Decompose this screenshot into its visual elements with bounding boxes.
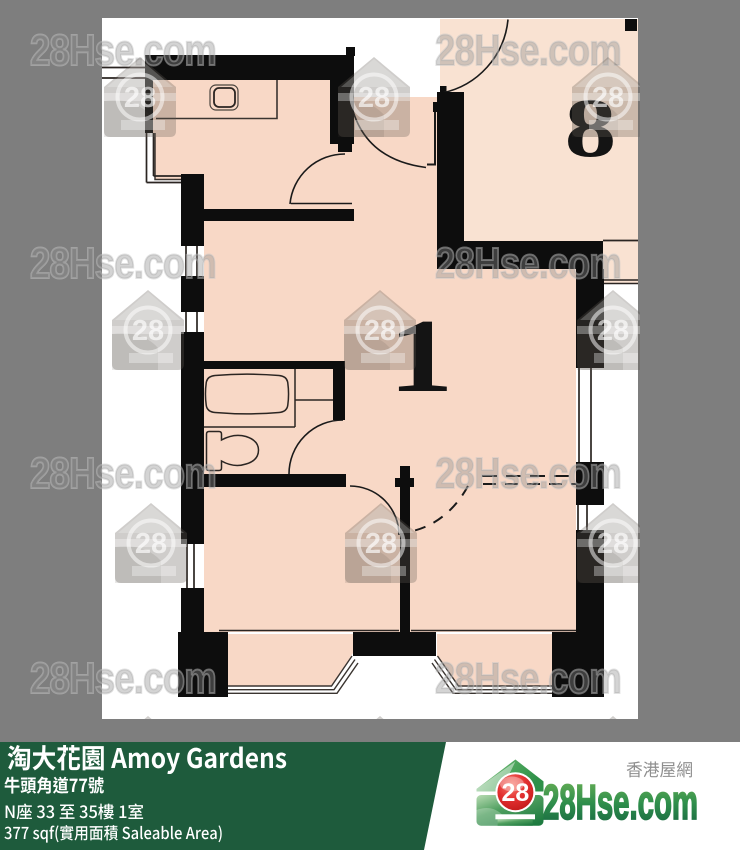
svg-text:28Hse.com: 28Hse.com	[435, 449, 621, 498]
svg-text:28Hse.com: 28Hse.com	[30, 26, 216, 75]
svg-text:28: 28	[592, 82, 624, 114]
svg-text:28: 28	[124, 82, 156, 114]
svg-text:28Hse.com: 28Hse.com	[435, 239, 621, 288]
svg-text:28: 28	[364, 315, 396, 347]
svg-text:28Hse.com: 28Hse.com	[30, 654, 216, 703]
svg-text:28: 28	[597, 528, 629, 560]
svg-text:28: 28	[597, 315, 629, 347]
svg-text:28: 28	[132, 315, 164, 347]
svg-text:28: 28	[135, 528, 167, 560]
svg-text:28Hse.com: 28Hse.com	[543, 776, 698, 830]
svg-text:28Hse.com: 28Hse.com	[30, 449, 216, 498]
svg-text:28Hse.com: 28Hse.com	[30, 239, 216, 288]
svg-text:28: 28	[365, 528, 397, 560]
svg-text:28: 28	[358, 82, 390, 114]
svg-text:28: 28	[501, 779, 529, 807]
svg-text:28Hse.com: 28Hse.com	[435, 654, 621, 703]
svg-text:28Hse.com: 28Hse.com	[435, 26, 621, 75]
